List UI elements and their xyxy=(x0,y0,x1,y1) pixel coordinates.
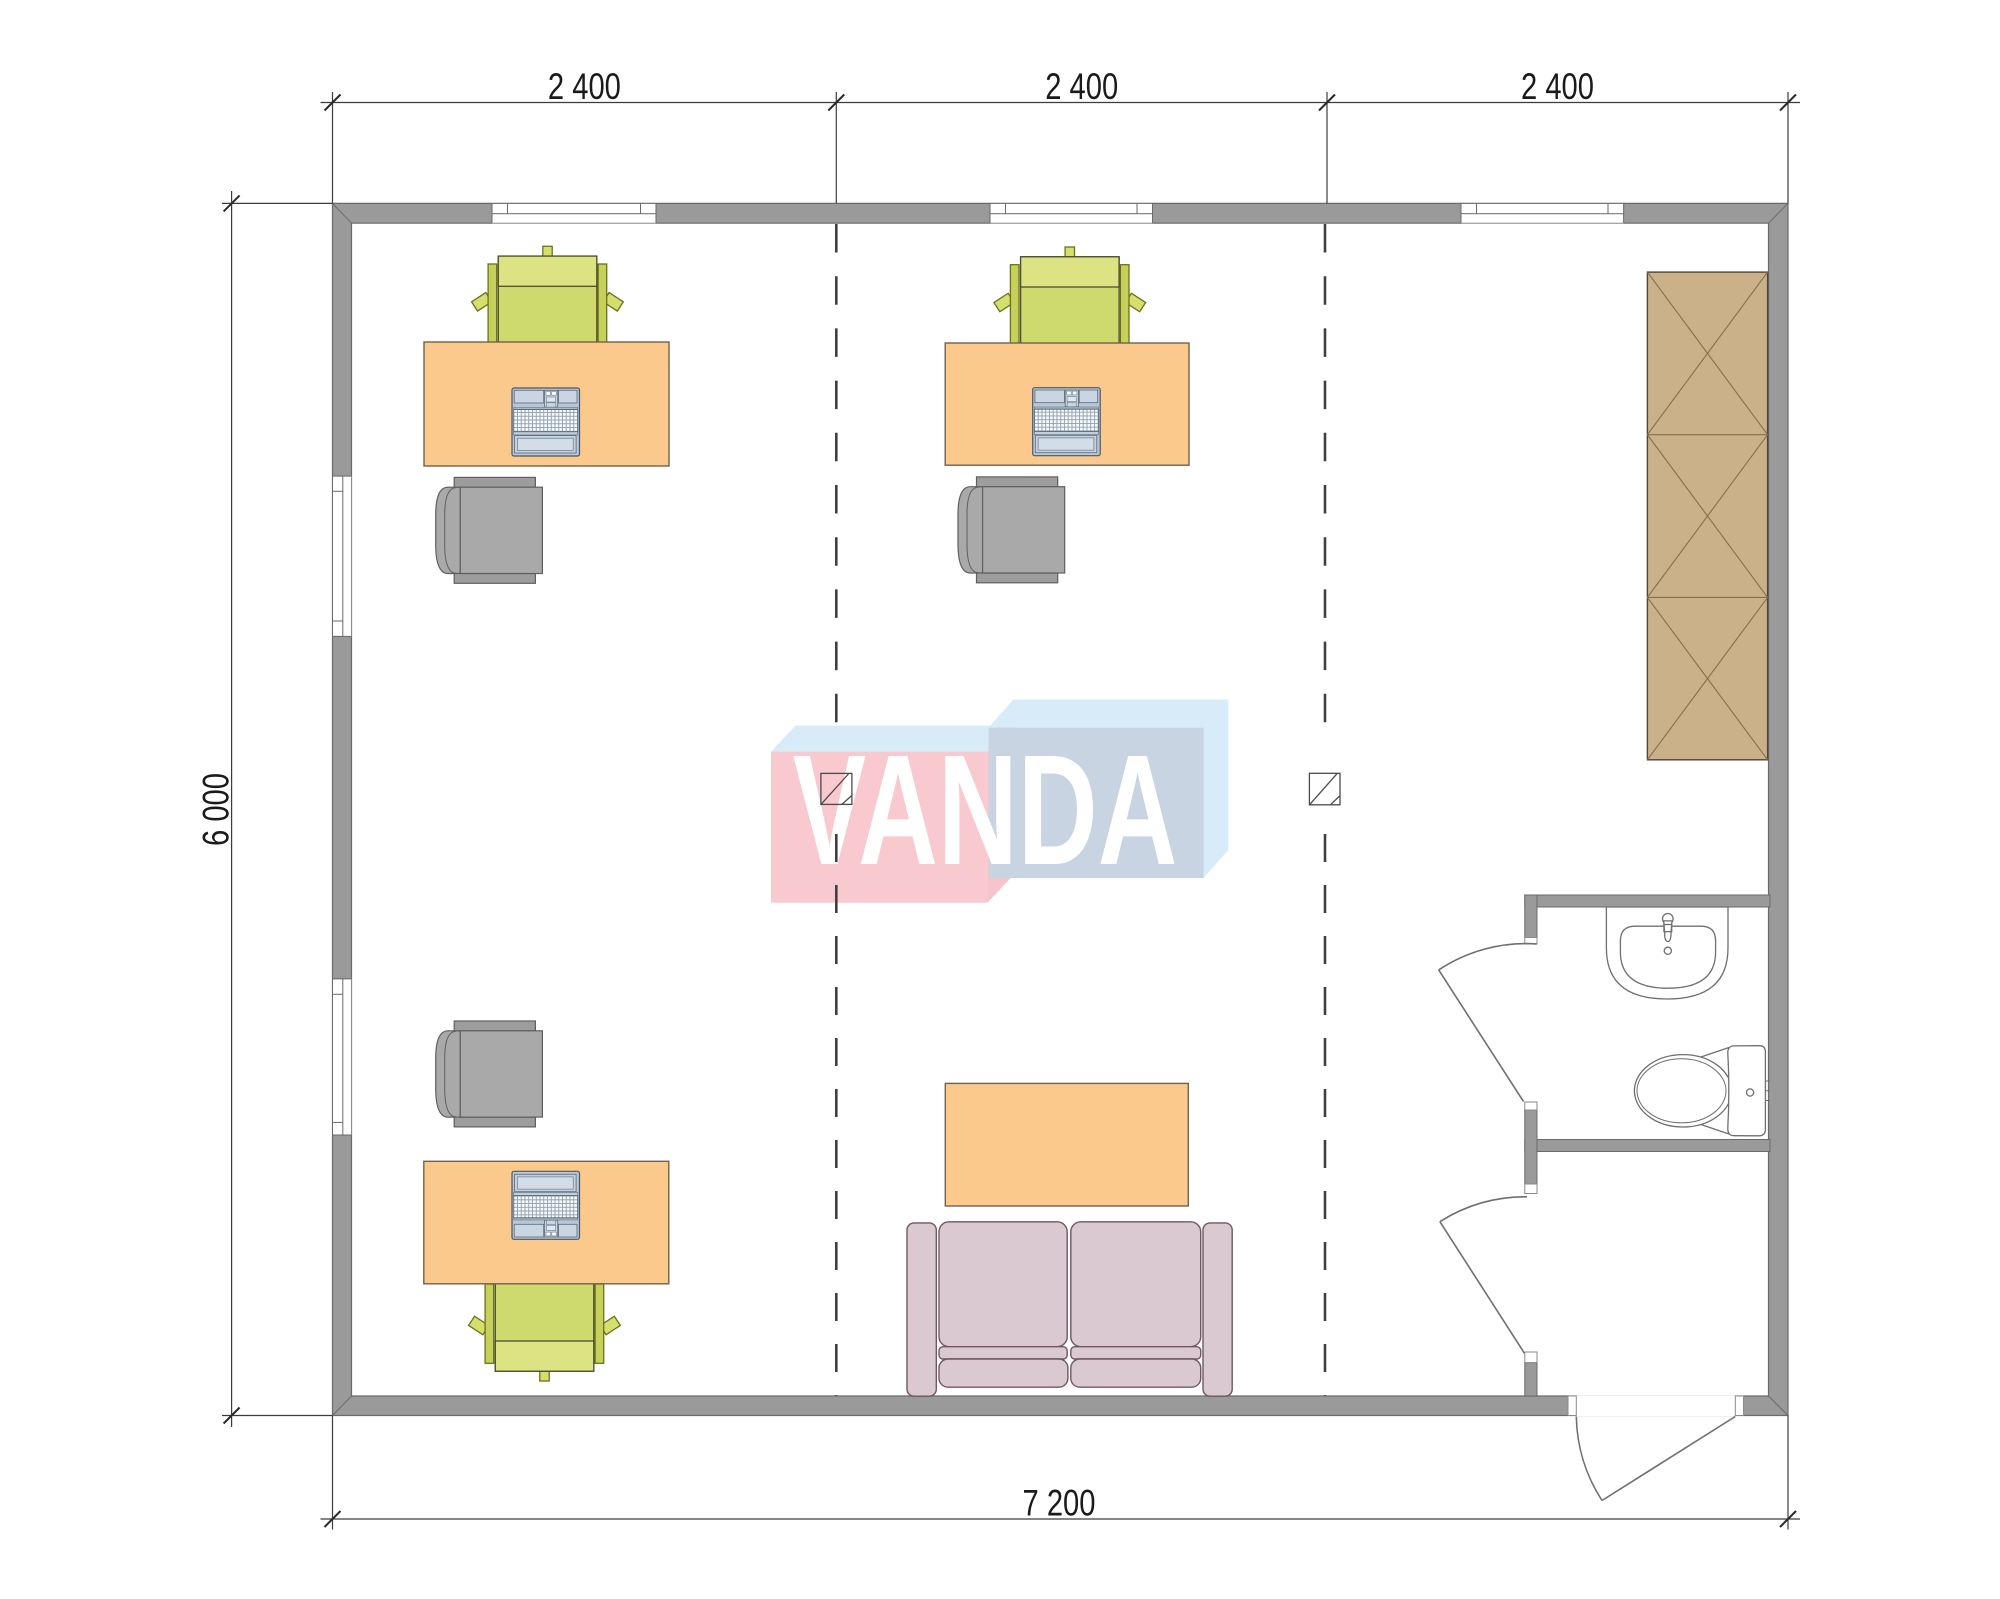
svg-text:7 200: 7 200 xyxy=(1023,1482,1096,1524)
svg-text:2 400: 2 400 xyxy=(1521,65,1594,107)
svg-text:2 400: 2 400 xyxy=(548,65,621,107)
svg-text:VANDA: VANDA xyxy=(793,723,1178,898)
svg-text:6 000: 6 000 xyxy=(195,773,237,846)
svg-text:2 400: 2 400 xyxy=(1045,65,1118,107)
